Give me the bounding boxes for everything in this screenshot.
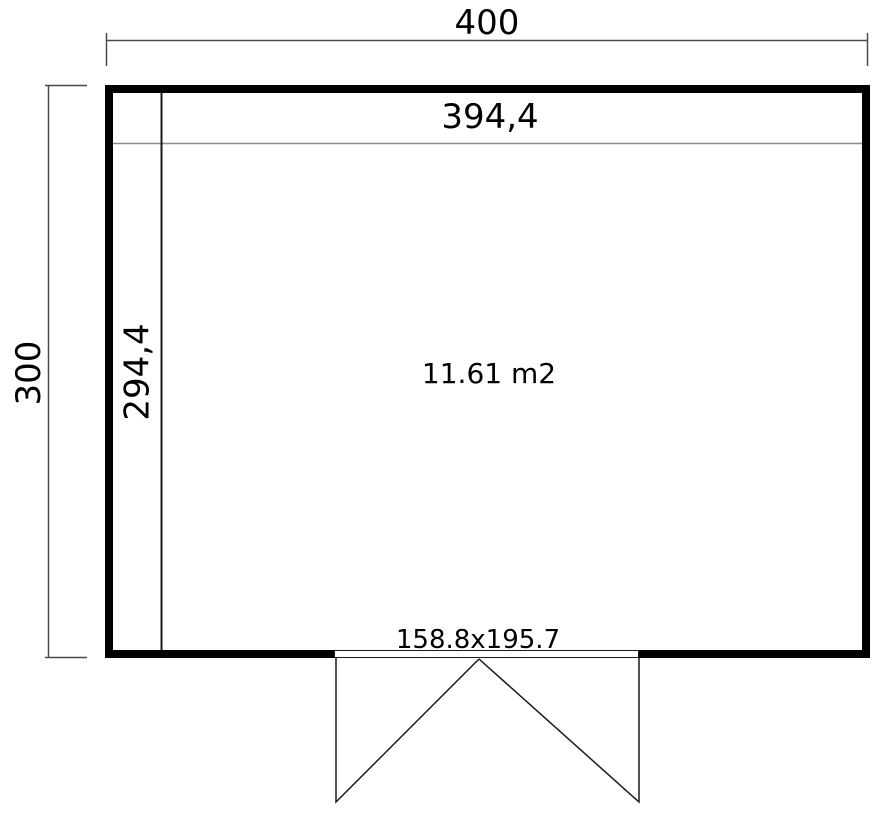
- floor-plan-drawing: 400 394,4 300 294,4 11.61 m2 158.8x195.7: [0, 0, 896, 826]
- wall-bottom-left: [105, 650, 334, 658]
- area-label: 11.61 m2: [422, 357, 556, 390]
- wall-bottom-right: [639, 650, 870, 658]
- wall-left: [105, 85, 113, 658]
- inner-width-label: 394,4: [441, 97, 538, 137]
- wall-right: [862, 85, 870, 658]
- floor-plan-canvas: 400 394,4 300 294,4 11.61 m2 158.8x195.7: [0, 0, 896, 826]
- outer-height-label: 300: [9, 341, 49, 406]
- door-leaf-right: [479, 658, 639, 802]
- door: [335, 651, 640, 803]
- wall-top: [105, 85, 870, 93]
- inner-height-label: 294,4: [118, 323, 158, 420]
- door-size-label: 158.8x195.7: [396, 625, 560, 655]
- door-leaf-left: [336, 658, 479, 802]
- outer-width-label: 400: [455, 3, 520, 43]
